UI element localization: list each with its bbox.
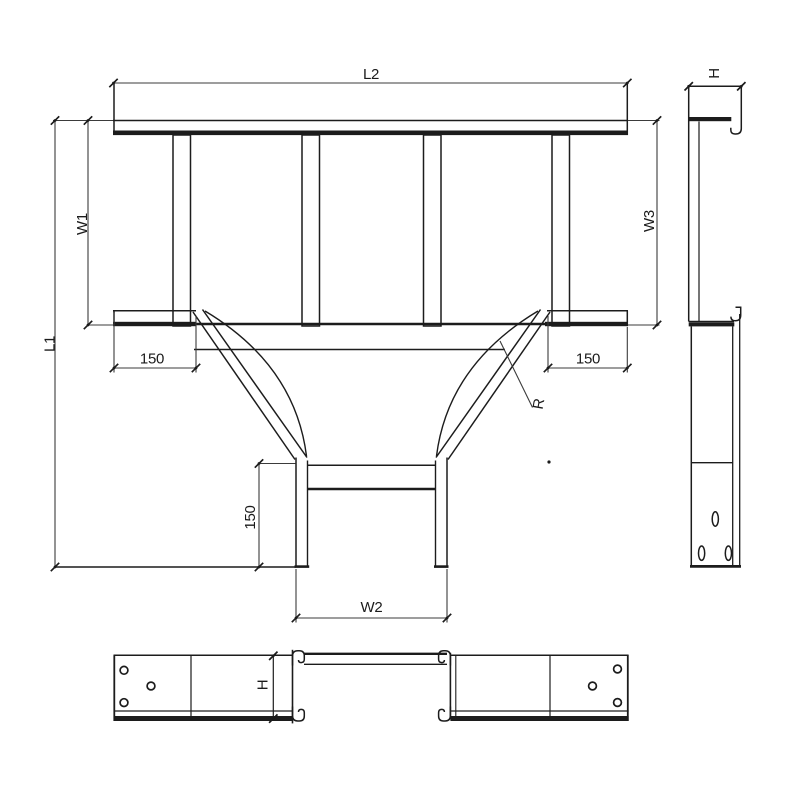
- front-right-panel: [450, 653, 628, 721]
- right-transition-inner: [436, 310, 541, 458]
- dim-label-l1: L1: [42, 336, 59, 352]
- dim-w2: W2: [292, 569, 451, 623]
- left-transition-outer: [193, 312, 295, 460]
- dim-label-h-front: H: [255, 680, 272, 691]
- plan-view: L2 W1 L1 W3 150: [42, 66, 662, 623]
- front-right-bottom-flange: [450, 716, 628, 721]
- rung-2: [302, 135, 320, 326]
- side-view: H: [685, 68, 746, 566]
- dim-label-150-left: 150: [140, 351, 164, 368]
- drawing-sheet: L2 W1 L1 W3 150: [0, 0, 800, 800]
- radius-label: R: [530, 397, 549, 411]
- dim-label-150-branch: 150: [242, 505, 259, 529]
- front-left-bottom-flange: [114, 716, 293, 721]
- front-lip-hook-top-left: [293, 651, 305, 666]
- plan-branch-transitions: [193, 310, 550, 460]
- plan-top-rail: [113, 83, 628, 135]
- front-hole-l2: [147, 682, 155, 690]
- front-view: H: [114, 650, 629, 724]
- dim-label-w1: W1: [74, 213, 91, 235]
- dim-label-w2: W2: [361, 599, 383, 616]
- radius-callout: R: [500, 341, 548, 411]
- plan-branch-rails: [295, 458, 551, 568]
- front-hole-l1: [120, 666, 128, 674]
- side-top-flange: [689, 117, 732, 121]
- dim-label-h-side: H: [706, 68, 723, 79]
- side-slot-hole-2: [699, 546, 705, 560]
- front-hole-r2: [589, 682, 597, 690]
- front-lip-hook-bottom-left: [293, 707, 305, 722]
- bottom-rail-right-inner: [545, 322, 628, 326]
- rung-1: [173, 135, 191, 326]
- plan-rungs: [173, 135, 570, 326]
- front-lip-hook-bottom-right: [439, 707, 451, 722]
- dim-150-branch: 150: [242, 459, 296, 571]
- dim-label-l2: L2: [363, 66, 379, 83]
- side-mid-flange: [689, 322, 735, 326]
- dim-label-w3: W3: [641, 210, 658, 232]
- side-slot-hole-1: [712, 512, 718, 526]
- right-transition-outer: [448, 312, 550, 460]
- reference-dot: [547, 460, 550, 463]
- side-lip-hook-top: [731, 121, 742, 135]
- dim-w3: W3: [628, 116, 661, 329]
- front-hole-r1: [614, 665, 622, 673]
- rung-4: [552, 135, 570, 326]
- rung-3: [424, 135, 442, 326]
- bottom-rail-left-inner: [113, 322, 196, 326]
- radius-leader-line: [500, 341, 533, 408]
- front-hole-r3: [614, 699, 622, 707]
- dim-h-front: H: [255, 652, 278, 723]
- dim-h-side: H: [685, 68, 746, 90]
- front-middle-opening: [293, 651, 451, 721]
- front-hole-l3: [120, 699, 128, 707]
- technical-drawing-canvas: L2 W1 L1 W3 150: [0, 0, 800, 800]
- dim-l2: L2: [109, 66, 631, 87]
- left-transition-inner: [203, 310, 308, 458]
- dim-l1: L1: [42, 116, 297, 571]
- side-slot-hole-3: [725, 546, 731, 560]
- dim-label-150-right: 150: [576, 351, 600, 368]
- dim-w1: W1: [53, 116, 114, 329]
